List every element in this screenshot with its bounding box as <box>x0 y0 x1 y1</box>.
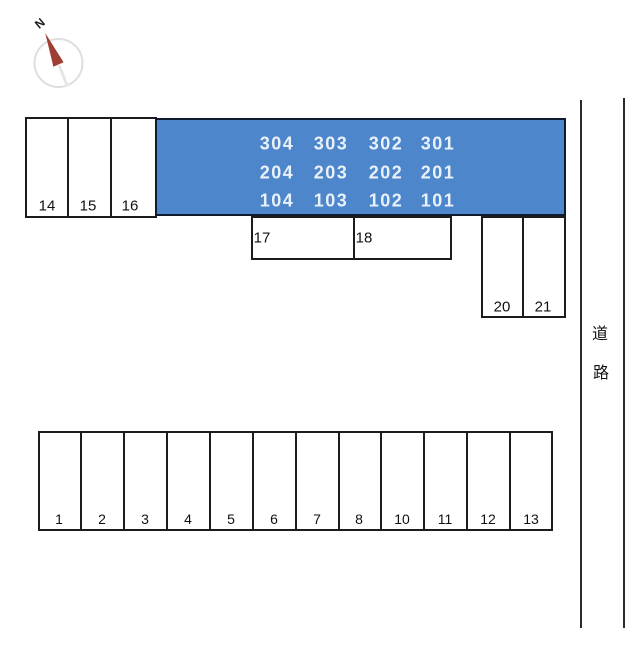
svg-text:N: N <box>32 15 48 31</box>
